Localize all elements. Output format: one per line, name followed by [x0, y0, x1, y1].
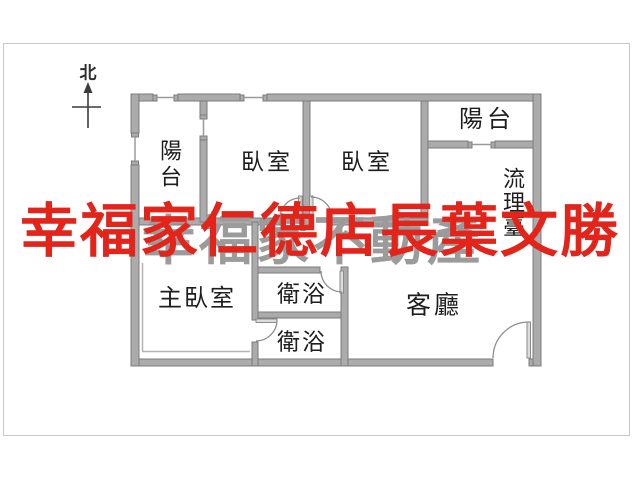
room-label-master-bedroom: 主臥室 [158, 287, 236, 311]
bathroom1-door-leaf [340, 271, 344, 293]
entrance-door-arc [493, 322, 529, 358]
red-agent-watermark: 幸福家仁德店長葉文勝 [20, 203, 620, 261]
room-label-living-room: 客廳 [406, 294, 462, 319]
floor-plan-page: 北 陽台 臥室 臥室 陽台 流理臺 主臥室 衛浴 衛浴 客廳 幸福家不動產 幸福… [0, 0, 640, 480]
north-arrow-icon [72, 82, 101, 128]
entrance-door-leaf [527, 322, 531, 358]
room-label-bedroom-1: 臥室 [241, 151, 293, 174]
bathroom2-door-leaf [256, 319, 277, 323]
bathroom2-door-arc [256, 320, 277, 341]
room-label-bathroom-1: 衛浴 [277, 283, 327, 306]
room-label-balcony-right: 陽台 [459, 108, 515, 132]
room-label-bathroom-2: 衛浴 [277, 331, 327, 354]
north-label: 北 [80, 59, 97, 84]
room-label-balcony-left: 陽台 [158, 139, 180, 191]
room-label-bedroom-2: 臥室 [341, 151, 393, 174]
